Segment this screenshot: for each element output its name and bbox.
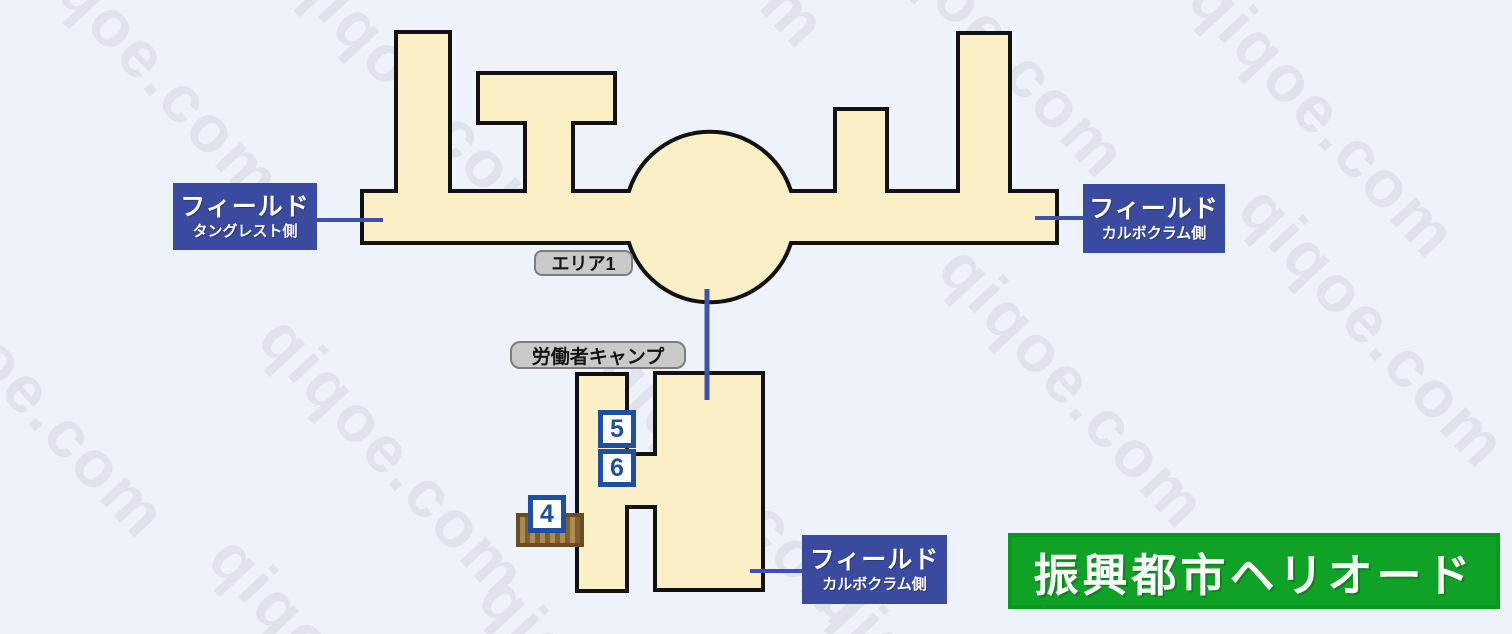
label-field-south-line2: カルボクラム側 [822, 576, 927, 593]
label-field-south-line1: フィールド [810, 546, 940, 575]
map-shape-area1 [362, 32, 1057, 302]
label-area1: エリア1 [534, 250, 633, 276]
label-field-east-line2: カルボクラム側 [1102, 225, 1207, 242]
marker-5: 5 [598, 410, 636, 448]
marker-6: 6 [598, 449, 636, 487]
marker-4: 4 [528, 495, 566, 533]
label-worker-camp: 労働者キャンプ [510, 341, 686, 369]
label-field-carbochrome-side-east: フィールド カルボクラム側 [1083, 184, 1225, 253]
label-field-carbochrome-side-south: フィールド カルボクラム側 [802, 535, 947, 604]
map-canvas: qiqoe.com qiqoe.com qiqoe.com qiqoe.com … [0, 0, 1512, 634]
label-field-tangrest-line1: フィールド [180, 193, 310, 222]
label-field-tangrest-line2: タングレスト側 [192, 223, 297, 240]
label-field-tangrest-side: フィールド タングレスト側 [173, 183, 317, 250]
map-title: 振興都市ヘリオード [1008, 533, 1500, 609]
label-field-east-line1: フィールド [1089, 195, 1219, 224]
